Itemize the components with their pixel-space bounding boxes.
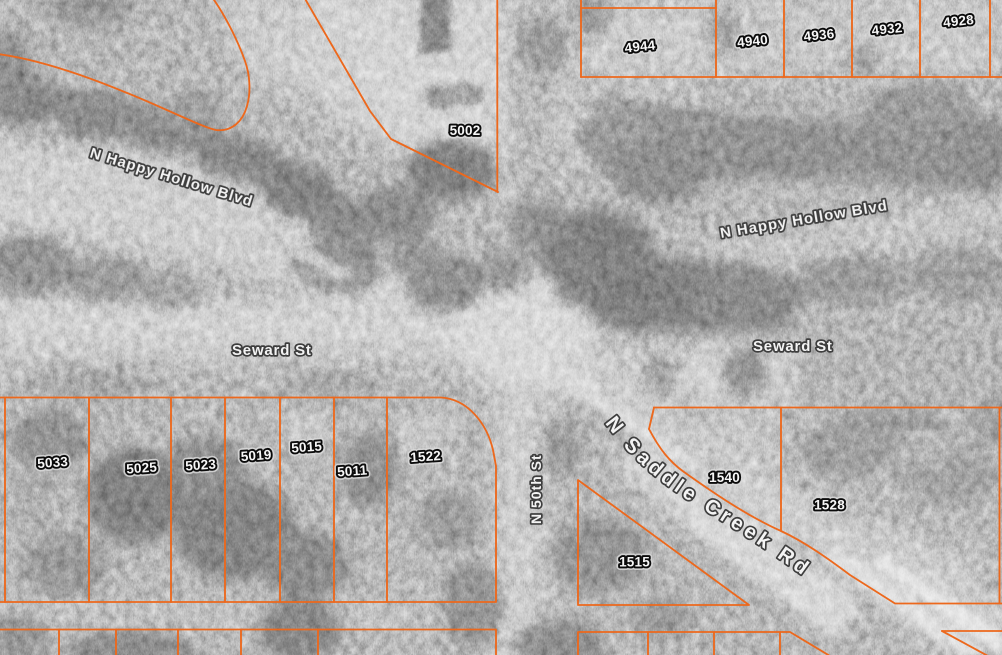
svg-text:5011: 5011 (337, 462, 368, 479)
svg-text:1515: 1515 (619, 555, 650, 570)
svg-text:1540: 1540 (709, 470, 740, 485)
svg-text:5002: 5002 (450, 123, 481, 138)
svg-text:N 50th St: N 50th St (528, 454, 544, 524)
svg-text:Seward St: Seward St (753, 338, 833, 355)
svg-text:4940: 4940 (736, 32, 768, 50)
svg-text:5019: 5019 (240, 447, 272, 464)
svg-text:4932: 4932 (871, 20, 903, 38)
svg-text:5033: 5033 (37, 454, 69, 471)
svg-text:5025: 5025 (126, 459, 158, 476)
svg-text:Seward St: Seward St (232, 342, 312, 359)
svg-text:1522: 1522 (410, 448, 442, 465)
svg-text:5023: 5023 (185, 456, 217, 473)
svg-text:1528: 1528 (814, 498, 845, 513)
svg-text:5015: 5015 (291, 438, 323, 455)
